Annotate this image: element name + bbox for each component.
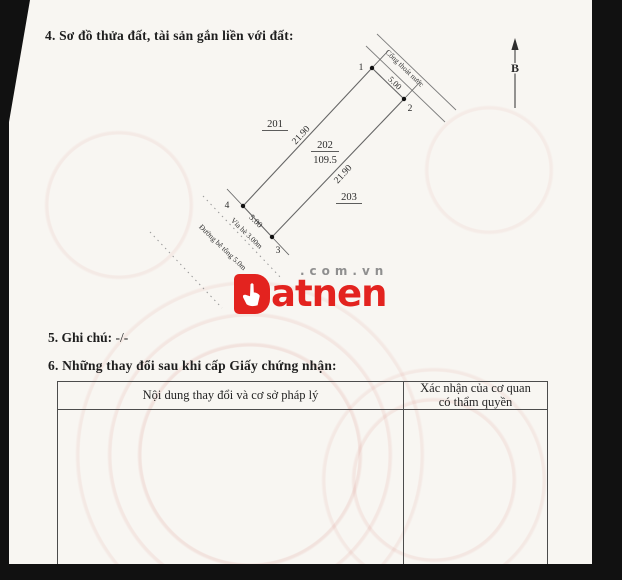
changes-table: Nội dung thay đổi và cơ sở pháp lý Xác n… <box>57 381 548 564</box>
datnen-watermark: .com.vn atnen <box>234 262 424 318</box>
section5-note: 5. Ghi chú: -/- <box>48 330 128 346</box>
col2-header-line2: có thẩm quyền <box>420 396 531 410</box>
vertex-4-label: 4 <box>225 201 230 211</box>
parcel-area: 109.5 <box>313 155 337 166</box>
changes-table-col2-header: Xác nhận của cơ quan có thẩm quyền <box>404 382 547 409</box>
svg-text:201: 201 <box>267 119 283 130</box>
vertex-2-label: 2 <box>408 104 413 114</box>
svg-text:203: 203 <box>341 192 357 203</box>
changes-table-header-row: Nội dung thay đổi và cơ sở pháp lý Xác n… <box>58 382 547 410</box>
changes-table-col1-header: Nội dung thay đổi và cơ sở pháp lý <box>58 382 404 409</box>
vertex-3-label: 3 <box>276 246 281 256</box>
parcel-202-label: 202 109.5 <box>311 140 339 166</box>
parcel-203-label: 203 <box>336 192 362 204</box>
section5-value: -/- <box>116 330 129 345</box>
watermark-brand-text: atnen <box>234 274 386 314</box>
datnen-logo-d-icon <box>234 274 270 314</box>
changes-table-col2-cell <box>404 410 547 564</box>
north-label: B <box>511 61 519 75</box>
parcel-201-label: 201 <box>262 119 288 131</box>
watermark-brand-rest: atnen <box>271 274 386 314</box>
north-arrow-icon: B <box>511 38 519 108</box>
parcel-number: 202 <box>317 140 333 151</box>
scanned-land-certificate-page: { "sections": { "section4_title": "4. Sơ… <box>0 0 622 580</box>
vertex-1-label: 1 <box>359 63 364 73</box>
col2-header-line1: Xác nhận của cơ quan <box>420 382 531 396</box>
changes-table-col1-cell <box>58 410 404 564</box>
section6-title: 6. Những thay đổi sau khi cấp Giấy chứng… <box>48 358 337 374</box>
changes-table-body-row <box>58 410 547 564</box>
section5-label: 5. Ghi chú: <box>48 330 112 345</box>
edge-top-length: 5.00 <box>386 74 404 92</box>
edge-right-length: 21.90 <box>333 163 355 186</box>
